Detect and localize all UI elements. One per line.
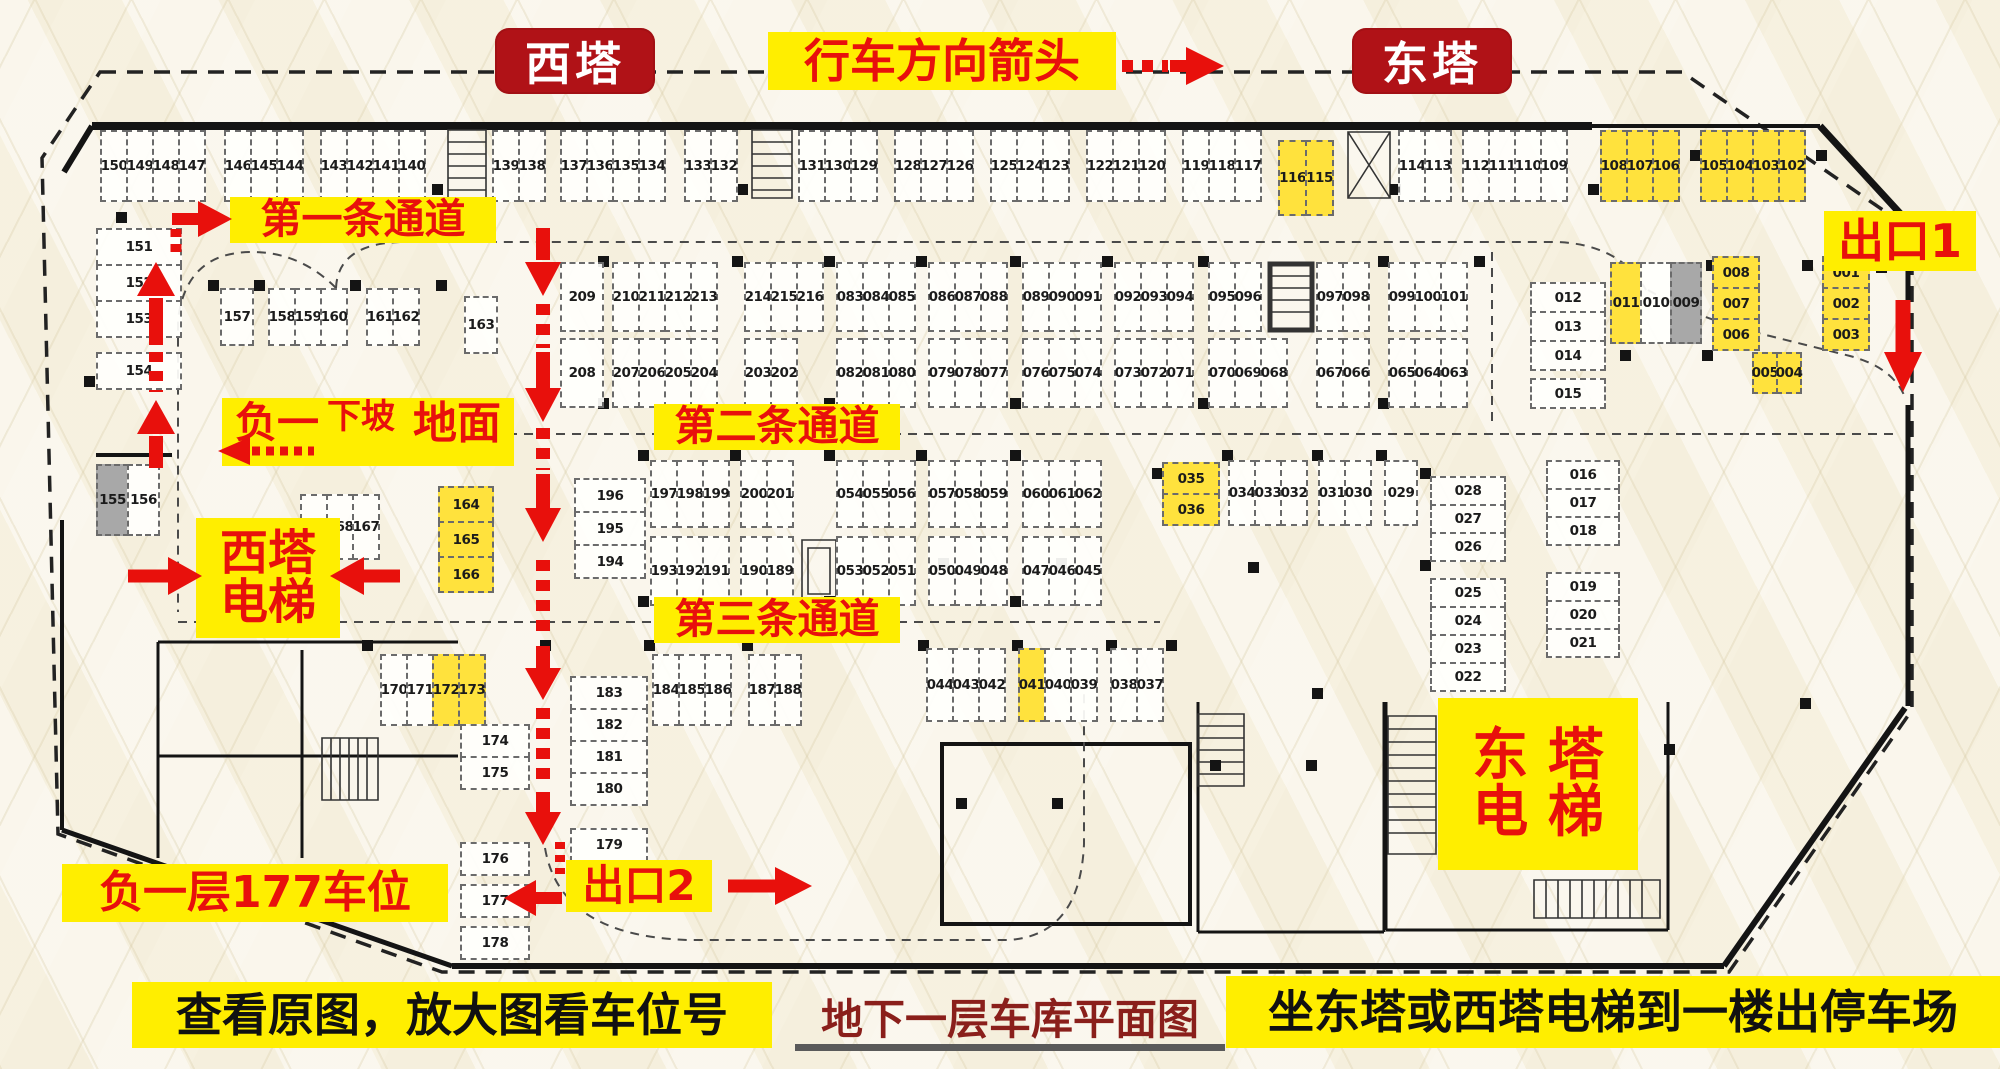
parking-group-r4i: 050049048 bbox=[928, 536, 1008, 606]
parking-group-r3h: 095096 bbox=[1208, 262, 1262, 332]
parking-spot-173: 173 bbox=[458, 654, 486, 726]
parking-spot-004: 004 bbox=[1776, 352, 1802, 394]
parking-spot-064: 064 bbox=[1414, 338, 1442, 408]
parking-spot-156: 156 bbox=[127, 464, 160, 536]
driving-direction-label: 行车方向箭头 bbox=[768, 32, 1116, 90]
east-elevator-label: 东 塔 电 梯 bbox=[1438, 698, 1638, 870]
parking-spot-132: 132 bbox=[710, 130, 738, 202]
parking-spot-073: 073 bbox=[1114, 338, 1142, 408]
parking-spot-216: 216 bbox=[796, 262, 824, 332]
parking-spot-054: 054 bbox=[836, 460, 864, 528]
caption-left: 查看原图，放大图看车位号 bbox=[132, 982, 772, 1048]
parking-spot-110: 110 bbox=[1514, 130, 1542, 202]
parking-spot-194: 194 bbox=[574, 544, 646, 579]
parking-group-bD: 177 bbox=[460, 884, 530, 918]
west-elevator-label: 西塔 电梯 bbox=[196, 518, 340, 638]
parking-spot-197: 197 bbox=[650, 460, 678, 528]
parking-spot-017: 017 bbox=[1546, 488, 1620, 518]
parking-spot-139: 139 bbox=[492, 130, 520, 202]
parking-spot-043: 043 bbox=[952, 648, 980, 722]
parking-spot-178: 178 bbox=[460, 926, 530, 960]
exit2-label: 出口2 bbox=[566, 860, 712, 912]
parking-spot-045: 045 bbox=[1074, 536, 1102, 606]
parking-spot-118: 118 bbox=[1208, 130, 1236, 202]
parking-spot-211: 211 bbox=[638, 262, 666, 332]
parking-spot-096: 096 bbox=[1234, 262, 1262, 332]
parking-spot-066: 066 bbox=[1342, 338, 1370, 408]
parking-spot-167: 167 bbox=[352, 494, 380, 560]
parking-spot-061: 061 bbox=[1048, 460, 1076, 528]
parking-spot-090: 090 bbox=[1048, 262, 1076, 332]
parking-spot-122: 122 bbox=[1086, 130, 1114, 202]
parking-group-r3i: 097098 bbox=[1316, 262, 1370, 332]
parking-group-r4a: 197198199 bbox=[650, 460, 730, 528]
parking-spot-181: 181 bbox=[570, 740, 648, 774]
parking-group-tI: 125124123 bbox=[990, 130, 1070, 202]
parking-group-bL: 038037 bbox=[1110, 648, 1164, 722]
parking-spot-164: 164 bbox=[438, 486, 494, 523]
parking-spot-026: 026 bbox=[1430, 532, 1506, 562]
parking-group-r3s: 067066 bbox=[1316, 338, 1370, 408]
parking-group-r4j: 047046045 bbox=[1022, 536, 1102, 606]
parking-spot-150: 150 bbox=[100, 130, 128, 202]
parking-spot-015: 015 bbox=[1530, 378, 1606, 409]
parking-spot-146: 146 bbox=[224, 130, 252, 202]
parking-spot-138: 138 bbox=[518, 130, 546, 202]
parking-group-r3l: 207206205204 bbox=[612, 338, 718, 408]
parking-spot-131: 131 bbox=[798, 130, 826, 202]
parking-group-tM: 114113 bbox=[1398, 130, 1452, 202]
caption-center: 地下一层车库平面图 bbox=[795, 988, 1225, 1051]
parking-spot-111: 111 bbox=[1488, 130, 1516, 202]
parking-group-r3a: 209 bbox=[560, 262, 604, 332]
parking-spot-163: 163 bbox=[464, 296, 498, 354]
parking-spot-136: 136 bbox=[586, 130, 614, 202]
parking-group-r3c: 214215216 bbox=[744, 262, 824, 332]
parking-group-tG: 131130129 bbox=[798, 130, 878, 202]
parking-spot-021: 021 bbox=[1546, 628, 1620, 658]
parking-group-rcJ: 016017018 bbox=[1546, 460, 1620, 546]
parking-spot-184: 184 bbox=[652, 654, 680, 726]
parking-spot-057: 057 bbox=[928, 460, 956, 528]
parking-group-rcA: 012013014 bbox=[1530, 282, 1606, 371]
parking-spot-097: 097 bbox=[1316, 262, 1344, 332]
parking-spot-049: 049 bbox=[954, 536, 982, 606]
parking-group-r4b: 200201 bbox=[740, 460, 794, 528]
parking-spot-105: 105 bbox=[1700, 130, 1728, 202]
parking-spot-123: 123 bbox=[1042, 130, 1070, 202]
parking-spot-180: 180 bbox=[570, 772, 648, 806]
parking-spot-033: 033 bbox=[1254, 460, 1282, 526]
parking-spot-215: 215 bbox=[770, 262, 798, 332]
parking-spot-018: 018 bbox=[1546, 516, 1620, 546]
parking-group-r2a: 157 bbox=[220, 288, 254, 346]
parking-group-bG: 179 bbox=[570, 828, 648, 862]
parking-spot-087: 087 bbox=[954, 262, 982, 332]
parking-spot-175: 175 bbox=[460, 756, 530, 790]
parking-spot-034: 034 bbox=[1228, 460, 1256, 526]
parking-spot-213: 213 bbox=[690, 262, 718, 332]
parking-spot-100: 100 bbox=[1414, 262, 1442, 332]
parking-group-bJ: 044043042 bbox=[926, 648, 1006, 722]
parking-spot-126: 126 bbox=[946, 130, 974, 202]
parking-group-r3m: 203202 bbox=[744, 338, 798, 408]
parking-spot-154: 154 bbox=[96, 352, 182, 390]
parking-group-lA: 151152153 bbox=[96, 228, 182, 338]
parking-group-rcD: 008007006 bbox=[1712, 256, 1760, 351]
parking-spot-214: 214 bbox=[744, 262, 772, 332]
parking-spot-058: 058 bbox=[954, 460, 982, 528]
parking-spot-039: 039 bbox=[1070, 648, 1098, 722]
parking-group-rcC: 011010009 bbox=[1610, 262, 1702, 344]
parking-group-m35: 035036 bbox=[1162, 462, 1220, 526]
parking-group-r3q: 073072071 bbox=[1114, 338, 1194, 408]
parking-spot-002: 002 bbox=[1822, 287, 1870, 320]
parking-spot-174: 174 bbox=[460, 724, 530, 758]
parking-spot-031: 031 bbox=[1318, 460, 1346, 526]
parking-spot-023: 023 bbox=[1430, 634, 1506, 664]
parking-spot-056: 056 bbox=[888, 460, 916, 528]
parking-group-tL: 116115 bbox=[1278, 140, 1334, 216]
parking-spot-142: 142 bbox=[346, 130, 374, 202]
parking-spot-055: 055 bbox=[862, 460, 890, 528]
parking-group-bC: 176 bbox=[460, 842, 530, 876]
west-elevator-line2: 电梯 bbox=[220, 578, 316, 627]
parking-group-r3j: 099100101 bbox=[1388, 262, 1468, 332]
parking-group-r4l: 031030 bbox=[1318, 460, 1372, 526]
parking-spot-157: 157 bbox=[220, 288, 254, 346]
parking-spot-038: 038 bbox=[1110, 648, 1138, 722]
parking-spot-014: 014 bbox=[1530, 340, 1606, 371]
parking-spot-089: 089 bbox=[1022, 262, 1050, 332]
parking-group-bA: 170171172173 bbox=[380, 654, 486, 726]
parking-group-bH: 184185186 bbox=[652, 654, 732, 726]
parking-spot-101: 101 bbox=[1440, 262, 1468, 332]
parking-spot-186: 186 bbox=[704, 654, 732, 726]
parking-spot-193: 193 bbox=[650, 536, 678, 606]
parking-spot-129: 129 bbox=[850, 130, 878, 202]
parking-group-r3b: 210211212213 bbox=[612, 262, 718, 332]
parking-spot-185: 185 bbox=[678, 654, 706, 726]
parking-group-tK: 119118117 bbox=[1182, 130, 1262, 202]
parking-spot-005: 005 bbox=[1752, 352, 1778, 394]
parking-group-r3f: 089090091 bbox=[1022, 262, 1102, 332]
parking-spot-149: 149 bbox=[126, 130, 154, 202]
parking-spot-116: 116 bbox=[1278, 140, 1307, 216]
parking-spot-009: 009 bbox=[1670, 262, 1702, 344]
parking-spot-011: 011 bbox=[1610, 262, 1642, 344]
parking-group-r3d: 083084085 bbox=[836, 262, 916, 332]
parking-spot-076: 076 bbox=[1022, 338, 1050, 408]
parking-spot-019: 019 bbox=[1546, 572, 1620, 602]
parking-group-tH: 128127126 bbox=[894, 130, 974, 202]
parking-group-r3t: 065064063 bbox=[1388, 338, 1468, 408]
parking-spot-120: 120 bbox=[1138, 130, 1166, 202]
parking-group-lB: 154 bbox=[96, 352, 182, 390]
parking-spot-060: 060 bbox=[1022, 460, 1050, 528]
parking-spot-204: 204 bbox=[690, 338, 718, 408]
parking-spot-182: 182 bbox=[570, 708, 648, 742]
parking-group-rcF: 005004 bbox=[1752, 352, 1802, 394]
parking-spot-079: 079 bbox=[928, 338, 956, 408]
parking-spot-141: 141 bbox=[372, 130, 400, 202]
parking-spot-109: 109 bbox=[1540, 130, 1568, 202]
parking-spot-084: 084 bbox=[862, 262, 890, 332]
parking-group-r3o: 079078077 bbox=[928, 338, 1008, 408]
parking-group-bB: 174175 bbox=[460, 724, 530, 790]
parking-spot-107: 107 bbox=[1626, 130, 1654, 202]
parking-spot-161: 161 bbox=[366, 288, 394, 346]
parking-group-tA: 150149148147 bbox=[100, 130, 206, 202]
parking-spot-035: 035 bbox=[1162, 462, 1220, 495]
parking-spot-200: 200 bbox=[740, 460, 768, 528]
parking-spot-179: 179 bbox=[570, 828, 648, 862]
parking-spot-050: 050 bbox=[928, 536, 956, 606]
parking-spot-158: 158 bbox=[268, 288, 296, 346]
parking-spot-210: 210 bbox=[612, 262, 640, 332]
parking-spot-030: 030 bbox=[1344, 460, 1372, 526]
east-elevator-line2: 电 梯 bbox=[1472, 784, 1604, 841]
parking-group-r3r: 070069068 bbox=[1208, 338, 1288, 408]
parking-group-mA: 155156 bbox=[96, 464, 160, 536]
parking-spot-196: 196 bbox=[574, 478, 646, 513]
parking-spot-069: 069 bbox=[1234, 338, 1262, 408]
parking-spot-188: 188 bbox=[774, 654, 802, 726]
parking-spot-201: 201 bbox=[766, 460, 794, 528]
parking-group-r4c: 054055056 bbox=[836, 460, 916, 528]
parking-group-bE: 178 bbox=[460, 926, 530, 960]
parking-spot-203: 203 bbox=[744, 338, 772, 408]
parking-spot-042: 042 bbox=[978, 648, 1006, 722]
parking-spot-133: 133 bbox=[684, 130, 712, 202]
parking-spot-088: 088 bbox=[980, 262, 1008, 332]
parking-spot-099: 099 bbox=[1388, 262, 1416, 332]
exit1-label: 出口1 bbox=[1824, 211, 1976, 271]
parking-group-bI: 187188 bbox=[748, 654, 802, 726]
parking-spot-114: 114 bbox=[1398, 130, 1426, 202]
parking-spot-068: 068 bbox=[1260, 338, 1288, 408]
parking-spot-027: 027 bbox=[1430, 504, 1506, 534]
parking-group-rcH: 025024023022 bbox=[1430, 578, 1506, 692]
parking-spot-102: 102 bbox=[1778, 130, 1806, 202]
parking-spot-092: 092 bbox=[1114, 262, 1142, 332]
parking-spot-013: 013 bbox=[1530, 311, 1606, 342]
parking-group-r3p: 076075074 bbox=[1022, 338, 1102, 408]
parking-group-r2c: 161162 bbox=[366, 288, 420, 346]
west-elevator-line1: 西塔 bbox=[220, 529, 316, 578]
parking-spot-125: 125 bbox=[990, 130, 1018, 202]
parking-spot-007: 007 bbox=[1712, 287, 1760, 320]
parking-spot-051: 051 bbox=[888, 536, 916, 606]
parking-spot-016: 016 bbox=[1546, 460, 1620, 490]
parking-spot-012: 012 bbox=[1530, 282, 1606, 313]
parking-group-m196: 196195194 bbox=[574, 478, 646, 579]
parking-spot-085: 085 bbox=[888, 262, 916, 332]
parking-group-bF: 183182181180 bbox=[570, 676, 648, 806]
parking-spot-077: 077 bbox=[980, 338, 1008, 408]
parking-spot-093: 093 bbox=[1140, 262, 1168, 332]
parking-spot-117: 117 bbox=[1234, 130, 1262, 202]
lane2-label: 第二条通道 bbox=[654, 404, 900, 450]
parking-spot-040: 040 bbox=[1044, 648, 1072, 722]
parking-spot-145: 145 bbox=[250, 130, 278, 202]
parking-group-r2b: 158159160 bbox=[268, 288, 348, 346]
parking-group-tE: 137136135134 bbox=[560, 130, 666, 202]
parking-spot-003: 003 bbox=[1822, 318, 1870, 351]
parking-spot-144: 144 bbox=[276, 130, 304, 202]
parking-spot-106: 106 bbox=[1652, 130, 1680, 202]
parking-spot-135: 135 bbox=[612, 130, 640, 202]
parking-spot-070: 070 bbox=[1208, 338, 1236, 408]
parking-spot-162: 162 bbox=[392, 288, 420, 346]
parking-spot-072: 072 bbox=[1140, 338, 1168, 408]
caption-right: 坐东塔或西塔电梯到一楼出停车场 bbox=[1226, 976, 2000, 1048]
parking-spot-098: 098 bbox=[1342, 262, 1370, 332]
slope-ground-text: 地面 bbox=[413, 402, 501, 446]
parking-spot-205: 205 bbox=[664, 338, 692, 408]
parking-spot-062: 062 bbox=[1074, 460, 1102, 528]
east-elevator-line1: 东 塔 bbox=[1472, 727, 1604, 784]
parking-group-r4m: 029 bbox=[1384, 460, 1418, 526]
parking-spot-208: 208 bbox=[560, 338, 604, 408]
parking-spot-119: 119 bbox=[1182, 130, 1210, 202]
parking-spot-212: 212 bbox=[664, 262, 692, 332]
parking-spot-063: 063 bbox=[1440, 338, 1468, 408]
parking-spot-029: 029 bbox=[1384, 460, 1418, 526]
b1-capacity-label: 负一层177车位 bbox=[62, 864, 448, 922]
parking-spot-187: 187 bbox=[748, 654, 776, 726]
parking-spot-028: 028 bbox=[1430, 476, 1506, 506]
parking-group-tD: 139138 bbox=[492, 130, 546, 202]
parking-spot-166: 166 bbox=[438, 556, 494, 593]
parking-spot-172: 172 bbox=[432, 654, 460, 726]
parking-spot-104: 104 bbox=[1726, 130, 1754, 202]
parking-spot-209: 209 bbox=[560, 262, 604, 332]
parking-spot-047: 047 bbox=[1022, 536, 1050, 606]
parking-spot-059: 059 bbox=[980, 460, 1008, 528]
parking-spot-083: 083 bbox=[836, 262, 864, 332]
parking-spot-036: 036 bbox=[1162, 493, 1220, 526]
slope-b1-text: 负一 bbox=[235, 402, 319, 444]
parking-spot-128: 128 bbox=[894, 130, 922, 202]
parking-spot-113: 113 bbox=[1424, 130, 1452, 202]
parking-spot-024: 024 bbox=[1430, 606, 1506, 636]
parking-spot-147: 147 bbox=[178, 130, 206, 202]
parking-spot-160: 160 bbox=[320, 288, 348, 346]
parking-spot-008: 008 bbox=[1712, 256, 1760, 289]
parking-group-rcB: 015 bbox=[1530, 378, 1606, 409]
parking-spot-155: 155 bbox=[96, 464, 129, 536]
parking-spot-044: 044 bbox=[926, 648, 954, 722]
parking-spot-094: 094 bbox=[1166, 262, 1194, 332]
parking-spot-121: 121 bbox=[1112, 130, 1140, 202]
parking-group-r3n: 082081080 bbox=[836, 338, 916, 408]
parking-spot-153: 153 bbox=[96, 300, 182, 338]
parking-spot-082: 082 bbox=[836, 338, 864, 408]
parking-group-rcG: 028027026 bbox=[1430, 476, 1506, 562]
parking-spot-170: 170 bbox=[380, 654, 408, 726]
parking-spot-143: 143 bbox=[320, 130, 348, 202]
parking-spot-124: 124 bbox=[1016, 130, 1044, 202]
parking-spot-022: 022 bbox=[1430, 662, 1506, 692]
parking-group-tP: 105104103102 bbox=[1700, 130, 1806, 202]
parking-spot-115: 115 bbox=[1305, 140, 1334, 216]
parking-spot-048: 048 bbox=[980, 536, 1008, 606]
parking-group-tF: 133132 bbox=[684, 130, 738, 202]
parking-spot-074: 074 bbox=[1074, 338, 1102, 408]
parking-spot-046: 046 bbox=[1048, 536, 1076, 606]
parking-group-tJ: 122121120 bbox=[1086, 130, 1166, 202]
parking-spot-195: 195 bbox=[574, 511, 646, 546]
parking-group-r3g: 092093094 bbox=[1114, 262, 1194, 332]
parking-group-bK: 041040039 bbox=[1018, 648, 1098, 722]
parking-group-tO: 108107106 bbox=[1600, 130, 1680, 202]
parking-spot-198: 198 bbox=[676, 460, 704, 528]
parking-spot-152: 152 bbox=[96, 264, 182, 302]
parking-group-r4d: 057058059 bbox=[928, 460, 1008, 528]
slope-down-text: 下坡 bbox=[327, 400, 395, 434]
parking-spot-108: 108 bbox=[1600, 130, 1628, 202]
slope-label: 负一 下坡 地面 bbox=[222, 398, 514, 466]
parking-spot-080: 080 bbox=[888, 338, 916, 408]
parking-spot-206: 206 bbox=[638, 338, 666, 408]
parking-spot-032: 032 bbox=[1280, 460, 1308, 526]
garage-floorplan: 西塔 行车方向箭头 东塔 第一条通道 负一 下坡 地面 第二条通道 第三条通道 … bbox=[0, 0, 2000, 1069]
parking-spot-171: 171 bbox=[406, 654, 434, 726]
parking-spot-151: 151 bbox=[96, 228, 182, 266]
parking-group-mC: 164165166 bbox=[438, 486, 494, 593]
east-tower-badge: 东塔 bbox=[1352, 28, 1512, 94]
parking-spot-081: 081 bbox=[862, 338, 890, 408]
parking-spot-103: 103 bbox=[1752, 130, 1780, 202]
parking-spot-130: 130 bbox=[824, 130, 852, 202]
parking-spot-067: 067 bbox=[1316, 338, 1344, 408]
parking-spot-006: 006 bbox=[1712, 318, 1760, 351]
parking-spot-020: 020 bbox=[1546, 600, 1620, 630]
parking-spot-086: 086 bbox=[928, 262, 956, 332]
parking-group-r4e: 060061062 bbox=[1022, 460, 1102, 528]
parking-spot-127: 127 bbox=[920, 130, 948, 202]
parking-spot-202: 202 bbox=[770, 338, 798, 408]
parking-group-tN: 112111110109 bbox=[1462, 130, 1568, 202]
parking-spot-071: 071 bbox=[1166, 338, 1194, 408]
parking-group-r3k: 208 bbox=[560, 338, 604, 408]
parking-spot-134: 134 bbox=[638, 130, 666, 202]
parking-spot-199: 199 bbox=[702, 460, 730, 528]
parking-group-r4k: 034033032 bbox=[1228, 460, 1308, 526]
parking-spot-112: 112 bbox=[1462, 130, 1490, 202]
parking-spot-078: 078 bbox=[954, 338, 982, 408]
parking-group-tB: 146145144 bbox=[224, 130, 304, 202]
parking-spot-176: 176 bbox=[460, 842, 530, 876]
parking-spot-065: 065 bbox=[1388, 338, 1416, 408]
parking-spot-148: 148 bbox=[152, 130, 180, 202]
parking-spot-207: 207 bbox=[612, 338, 640, 408]
parking-spot-010: 010 bbox=[1640, 262, 1672, 344]
parking-spot-137: 137 bbox=[560, 130, 588, 202]
parking-spot-159: 159 bbox=[294, 288, 322, 346]
west-tower-badge: 西塔 bbox=[495, 28, 655, 94]
lane1-label: 第一条通道 bbox=[230, 197, 496, 243]
parking-spot-140: 140 bbox=[398, 130, 426, 202]
parking-spot-091: 091 bbox=[1074, 262, 1102, 332]
parking-spot-095: 095 bbox=[1208, 262, 1236, 332]
parking-spot-037: 037 bbox=[1136, 648, 1164, 722]
parking-group-r3e: 086087088 bbox=[928, 262, 1008, 332]
parking-spot-025: 025 bbox=[1430, 578, 1506, 608]
parking-spot-075: 075 bbox=[1048, 338, 1076, 408]
parking-group-r2d: 163 bbox=[464, 296, 498, 354]
